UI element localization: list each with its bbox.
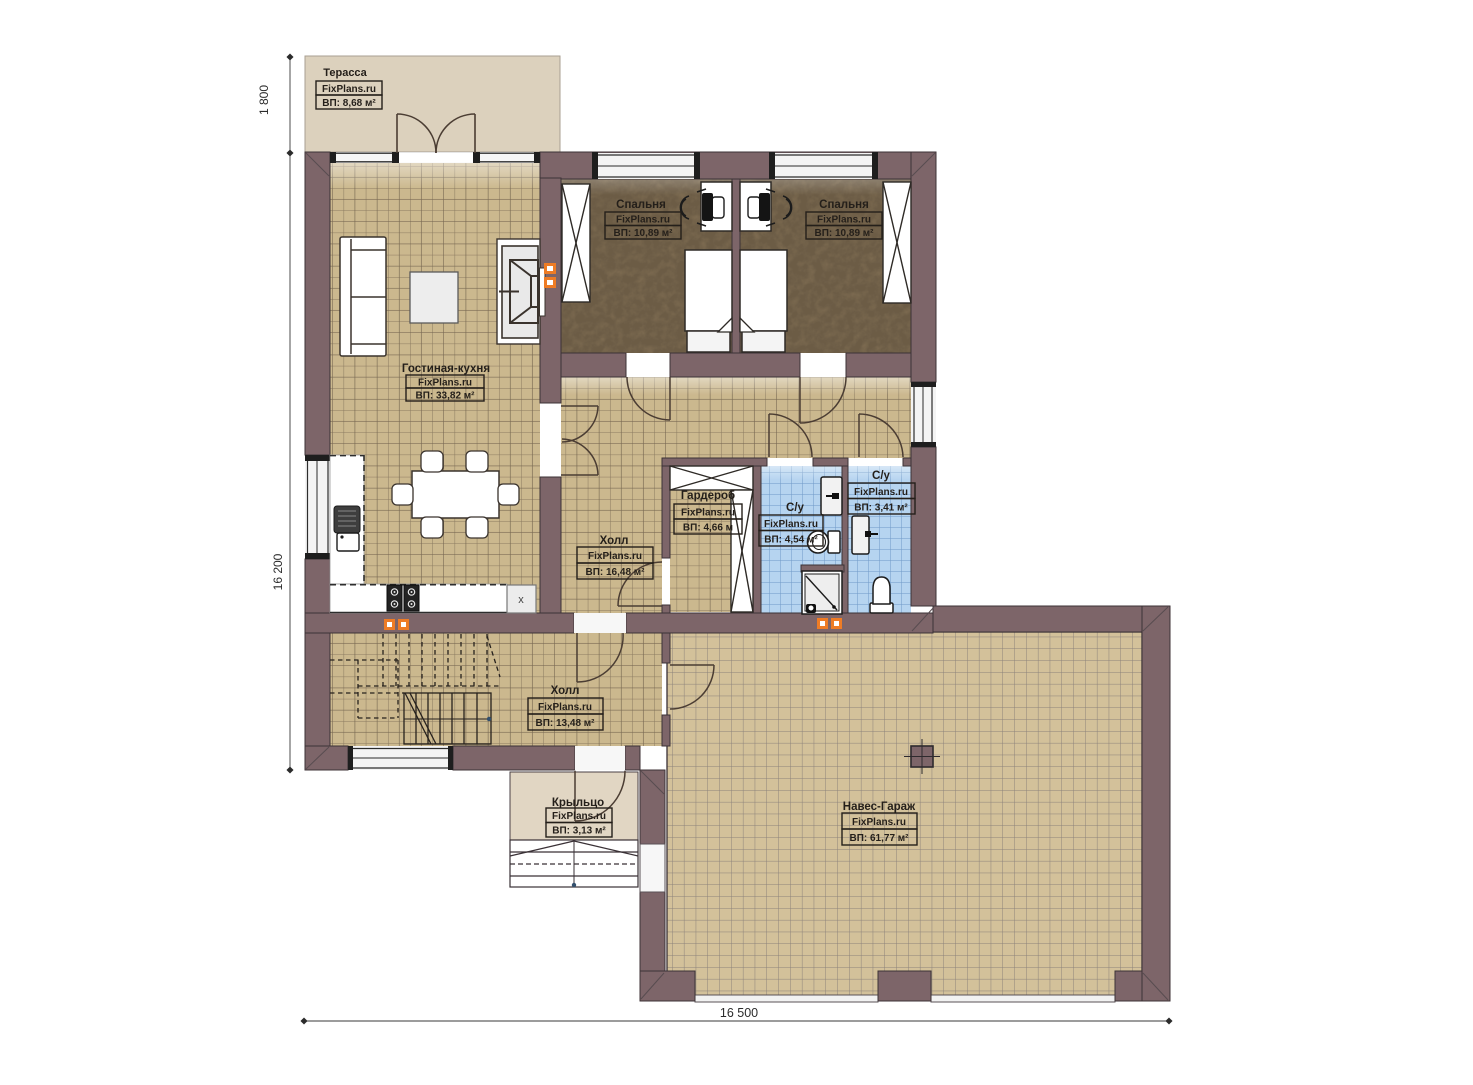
svg-text:ВП: 8,68 м²: ВП: 8,68 м² xyxy=(322,98,376,109)
svg-text:1 800: 1 800 xyxy=(257,85,271,115)
svg-text:ВП: 16,48 м²: ВП: 16,48 м² xyxy=(585,567,645,578)
svg-text:FixPlans.ru: FixPlans.ru xyxy=(552,811,606,822)
svg-text:ВП: 13,48 м²: ВП: 13,48 м² xyxy=(535,718,595,729)
svg-text:С/у: С/у xyxy=(872,470,891,482)
svg-text:FixPlans.ru: FixPlans.ru xyxy=(854,487,908,498)
svg-text:ВП: 4,66 м: ВП: 4,66 м xyxy=(683,523,733,534)
svg-text:FixPlans.ru: FixPlans.ru xyxy=(418,378,472,389)
svg-text:Терасса: Терасса xyxy=(323,67,367,79)
svg-text:Спальня: Спальня xyxy=(616,199,666,211)
svg-text:Крыльцо: Крыльцо xyxy=(552,797,604,809)
svg-text:FixPlans.ru: FixPlans.ru xyxy=(588,551,642,562)
svg-text:С/у: С/у xyxy=(786,502,805,514)
svg-text:ВП: 3,13 м²: ВП: 3,13 м² xyxy=(552,826,606,837)
svg-text:Гардероб: Гардероб xyxy=(681,490,735,502)
svg-text:Гостиная-кухня: Гостиная-кухня xyxy=(402,363,490,375)
svg-text:FixPlans.ru: FixPlans.ru xyxy=(616,215,670,226)
svg-text:x: x xyxy=(518,594,524,606)
svg-text:16 200: 16 200 xyxy=(271,553,285,590)
svg-text:ВП: 3,41 м²: ВП: 3,41 м² xyxy=(854,503,908,514)
svg-text:Холл: Холл xyxy=(551,685,580,697)
svg-text:Холл: Холл xyxy=(600,535,629,547)
svg-text:ВП: 4,54 м²: ВП: 4,54 м² xyxy=(764,535,818,546)
svg-text:ВП: 10,89 м²: ВП: 10,89 м² xyxy=(613,228,673,239)
svg-text:FixPlans.ru: FixPlans.ru xyxy=(852,817,906,828)
svg-text:FixPlans.ru: FixPlans.ru xyxy=(681,508,735,519)
svg-text:FixPlans.ru: FixPlans.ru xyxy=(322,84,376,95)
svg-text:Навес-Гараж: Навес-Гараж xyxy=(843,801,916,813)
svg-text:FixPlans.ru: FixPlans.ru xyxy=(817,215,871,226)
svg-text:FixPlans.ru: FixPlans.ru xyxy=(538,702,592,713)
svg-text:ВП: 10,89 м²: ВП: 10,89 м² xyxy=(814,228,874,239)
svg-text:FixPlans.ru: FixPlans.ru xyxy=(764,519,818,530)
svg-text:ВП: 61,77 м²: ВП: 61,77 м² xyxy=(849,833,909,844)
svg-text:ВП: 33,82 м²: ВП: 33,82 м² xyxy=(415,391,475,402)
svg-text:16 500: 16 500 xyxy=(720,1006,758,1020)
svg-text:Спальня: Спальня xyxy=(819,199,869,211)
